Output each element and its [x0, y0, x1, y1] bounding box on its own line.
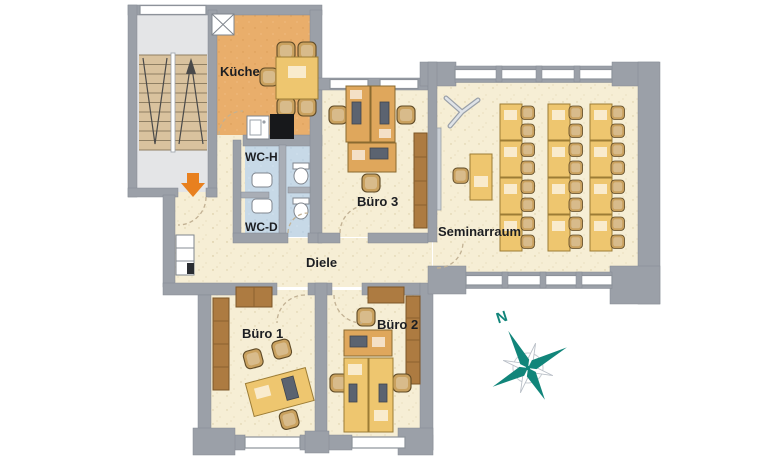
toilet	[294, 203, 308, 219]
monitor	[380, 102, 389, 124]
wc-sink	[252, 173, 272, 187]
window	[352, 437, 405, 448]
compass-rose-icon: N	[473, 308, 584, 419]
monitor	[370, 148, 388, 159]
window	[455, 70, 612, 80]
office-chair	[393, 374, 411, 392]
room-label-wc-d: WC-D	[245, 220, 278, 234]
monitor	[349, 384, 357, 402]
cabinet	[368, 287, 404, 303]
window	[245, 437, 300, 448]
room-label-seminarraum: Seminarraum	[438, 224, 521, 239]
monitor	[350, 336, 367, 347]
window	[466, 276, 612, 286]
room-label-buero3: Büro 3	[357, 194, 398, 209]
window	[140, 6, 206, 15]
kitchen-chair	[298, 98, 316, 116]
toilet	[294, 168, 308, 184]
office-chair	[329, 106, 347, 124]
office-chair	[397, 106, 415, 124]
wardrobe	[176, 235, 194, 275]
office-chair	[362, 174, 380, 192]
monitor	[352, 102, 361, 124]
room-label-wc-h: WC-H	[245, 150, 278, 164]
monitor	[379, 384, 387, 402]
floor-plan-svg: Küche WC-H WC-D Büro 3 Seminarraum Diele…	[0, 0, 760, 460]
room-label-diele: Diele	[306, 255, 337, 270]
floor-plan: Küche WC-H WC-D Büro 3 Seminarraum Diele…	[0, 0, 760, 460]
kitchen-chair	[260, 68, 278, 86]
compass-north-label: N	[494, 308, 510, 328]
whiteboard	[437, 128, 441, 210]
kitchen-stove	[270, 114, 294, 139]
presenter-chair	[453, 168, 468, 183]
room-label-kueche: Küche	[220, 64, 260, 79]
room-label-buero1: Büro 1	[242, 326, 283, 341]
room-label-buero2: Büro 2	[377, 317, 418, 332]
wc-sink	[252, 199, 272, 213]
kitchen-chair	[277, 98, 295, 116]
office-chair	[357, 308, 375, 326]
stairwell	[139, 53, 207, 152]
